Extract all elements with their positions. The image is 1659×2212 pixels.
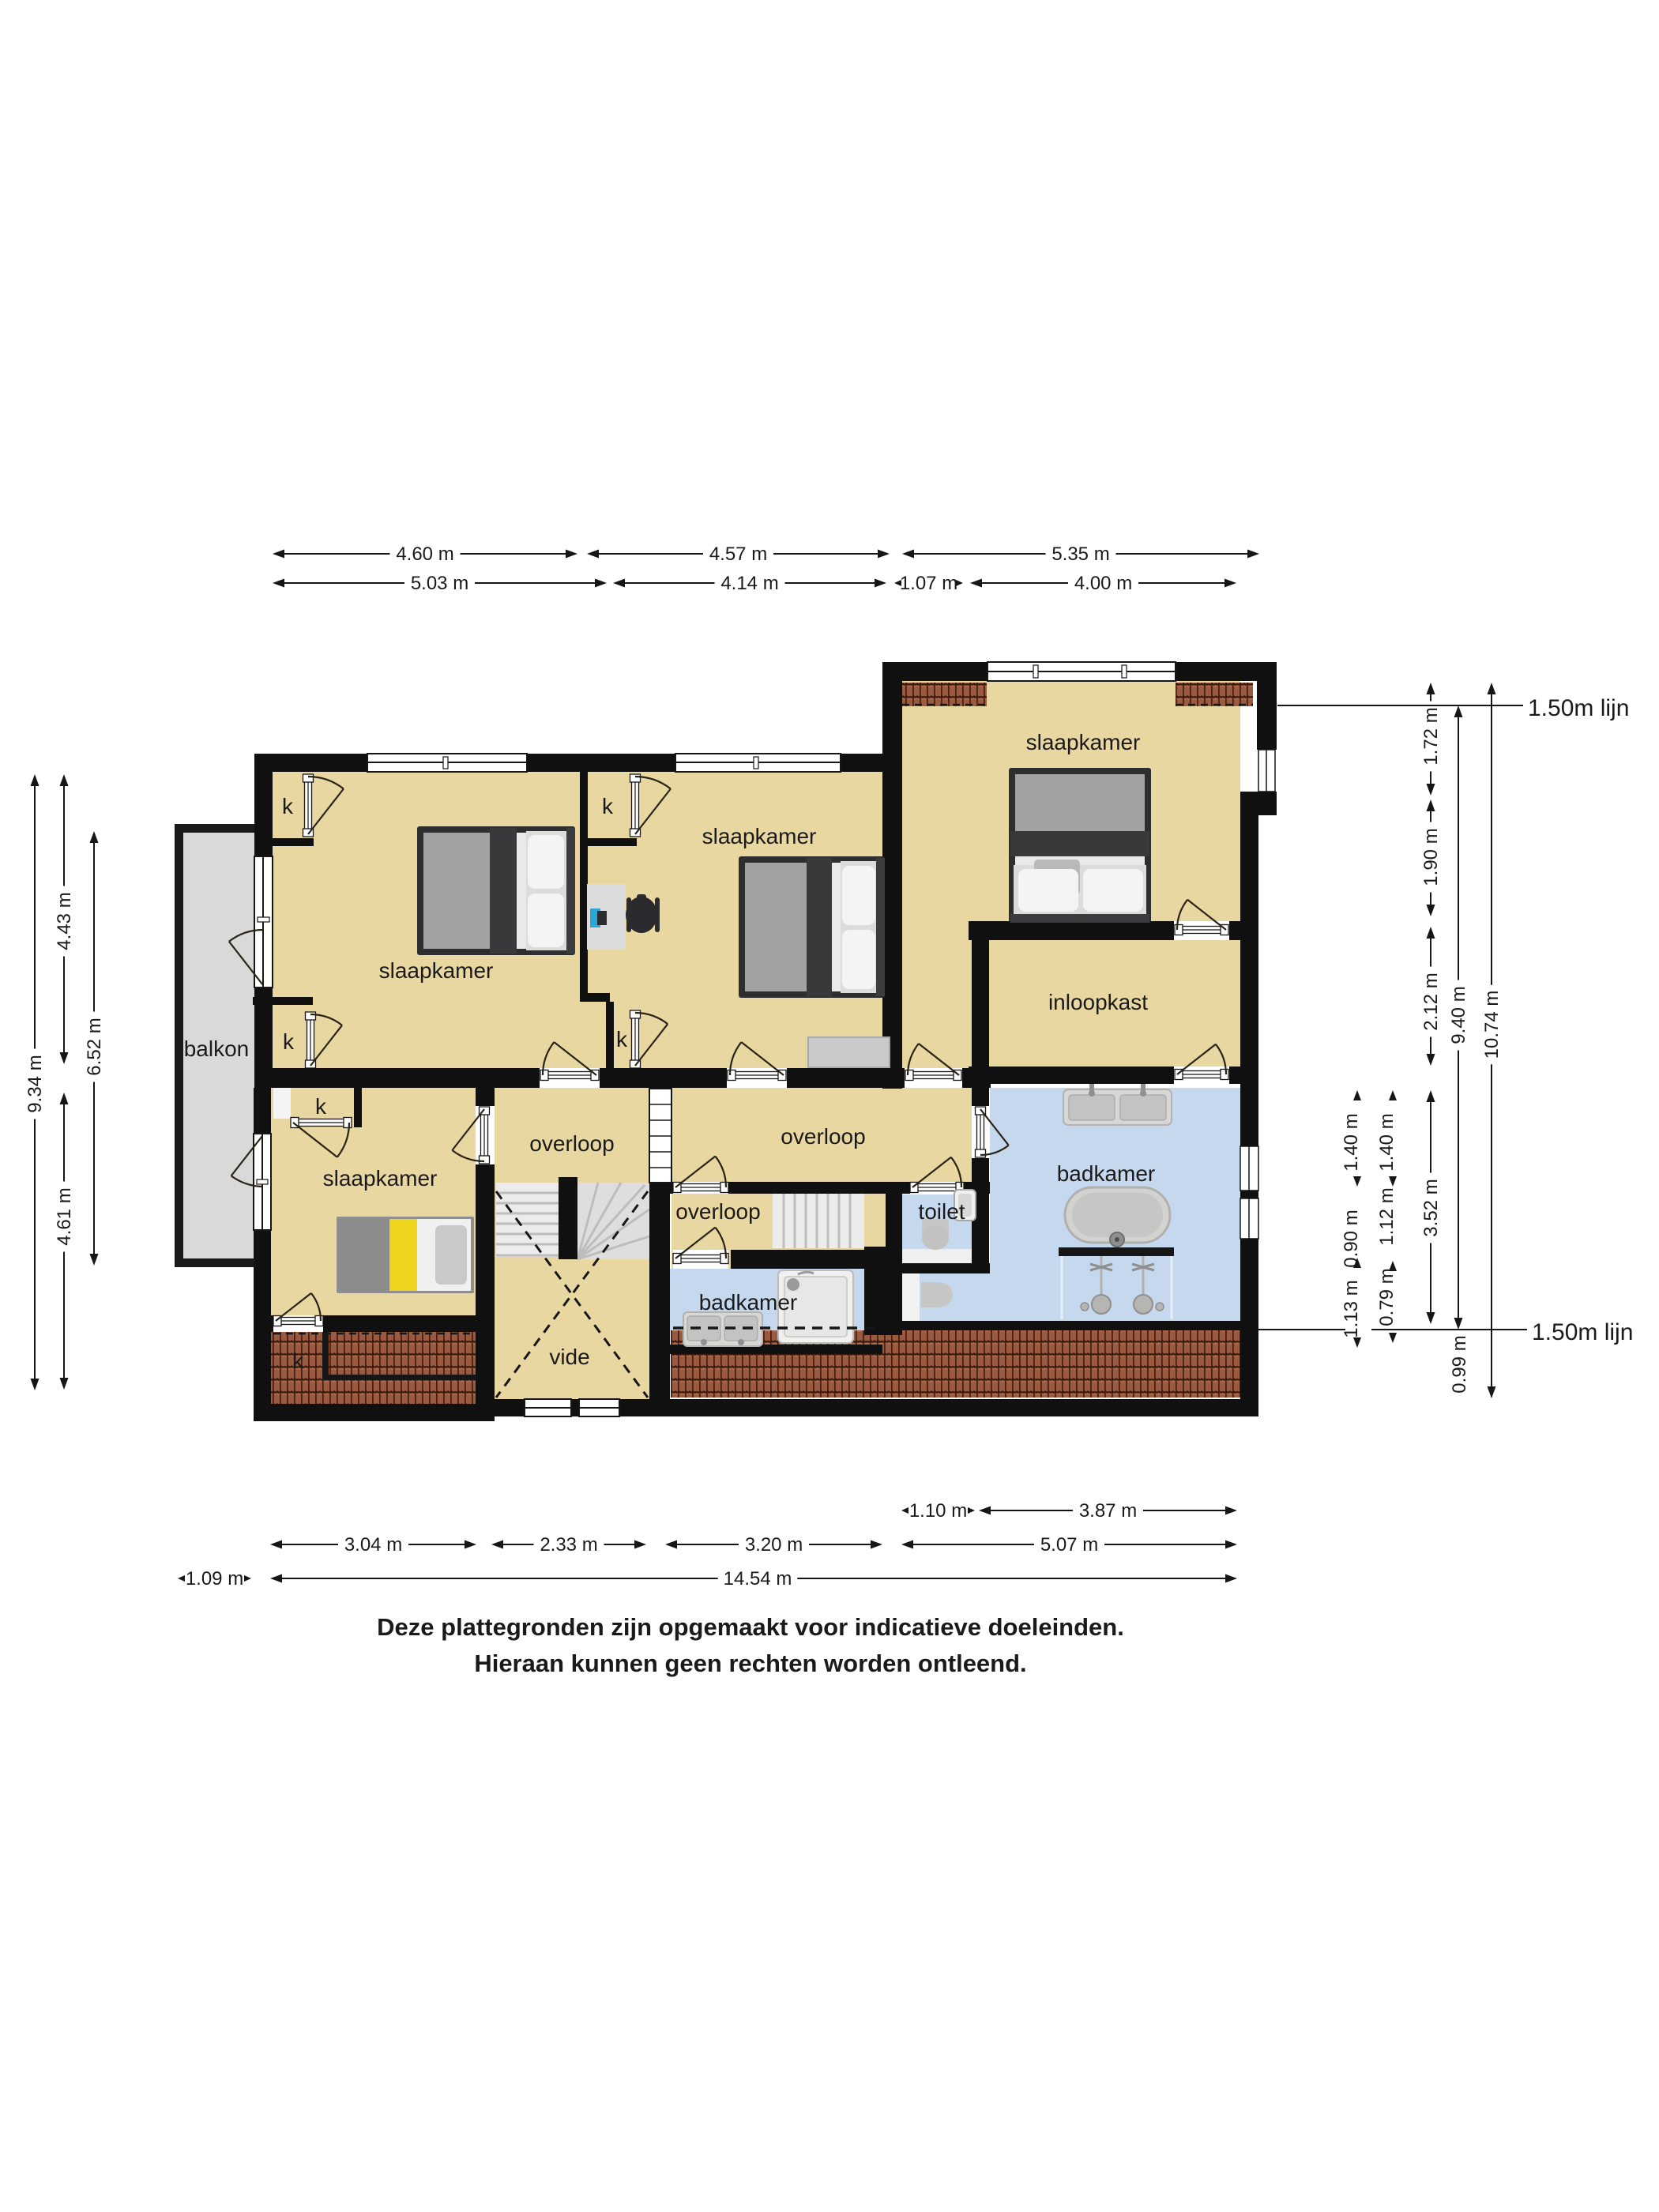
svg-text:9.40 m: 9.40 m <box>1448 986 1469 1044</box>
svg-text:slaapkamer: slaapkamer <box>702 824 817 848</box>
svg-text:overloop: overloop <box>781 1124 865 1149</box>
svg-text:4.60 m: 4.60 m <box>396 544 453 565</box>
svg-text:badkamer: badkamer <box>699 1290 798 1315</box>
svg-text:3.52 m: 3.52 m <box>1420 1179 1442 1236</box>
svg-text:k: k <box>282 794 294 818</box>
svg-text:4.61 m: 4.61 m <box>54 1187 75 1245</box>
svg-text:toilet: toilet <box>918 1199 965 1224</box>
svg-text:2.12 m: 2.12 m <box>1420 972 1442 1030</box>
svg-text:1.90 m: 1.90 m <box>1420 828 1442 886</box>
svg-text:3.87 m: 3.87 m <box>1079 1500 1137 1522</box>
svg-text:2.33 m: 2.33 m <box>540 1534 597 1556</box>
svg-text:0.79 m: 0.79 m <box>1376 1268 1398 1326</box>
svg-text:6.52 m: 6.52 m <box>84 1018 105 1075</box>
svg-text:inloopkast: inloopkast <box>1048 990 1148 1014</box>
svg-text:0.90 m: 0.90 m <box>1341 1209 1362 1267</box>
svg-text:5.07 m: 5.07 m <box>1040 1534 1098 1556</box>
svg-text:1.40 m: 1.40 m <box>1341 1113 1362 1171</box>
svg-text:4.43 m: 4.43 m <box>54 892 75 950</box>
svg-text:k: k <box>616 1027 628 1051</box>
svg-text:0.99 m: 0.99 m <box>1449 1335 1470 1393</box>
svg-text:10.74 m: 10.74 m <box>1481 991 1503 1059</box>
svg-text:Hieraan kunnen geen rechten wo: Hieraan kunnen geen rechten worden ontle… <box>474 1650 1026 1677</box>
svg-text:1.07 m: 1.07 m <box>900 573 957 594</box>
svg-text:overloop: overloop <box>529 1131 614 1156</box>
svg-text:14.54 m: 14.54 m <box>724 1568 792 1589</box>
svg-text:k: k <box>315 1094 327 1119</box>
svg-text:slaapkamer: slaapkamer <box>1026 730 1141 754</box>
svg-text:1.72 m: 1.72 m <box>1420 707 1442 765</box>
svg-text:4.00 m: 4.00 m <box>1074 573 1132 594</box>
svg-text:3.20 m: 3.20 m <box>745 1534 803 1556</box>
svg-text:badkamer: badkamer <box>1057 1161 1156 1186</box>
svg-text:balkon: balkon <box>184 1036 250 1061</box>
svg-text:1.50m lijn: 1.50m lijn <box>1532 1319 1633 1345</box>
svg-text:1.12 m: 1.12 m <box>1376 1187 1398 1245</box>
svg-text:5.35 m: 5.35 m <box>1051 544 1109 565</box>
svg-text:overloop: overloop <box>675 1199 760 1224</box>
svg-text:4.57 m: 4.57 m <box>709 544 767 565</box>
svg-text:Deze plattegronden zijn opgema: Deze plattegronden zijn opgemaakt voor i… <box>377 1613 1124 1641</box>
svg-text:k: k <box>292 1349 304 1373</box>
svg-text:slaapkamer: slaapkamer <box>323 1166 438 1191</box>
svg-text:1.09 m: 1.09 m <box>186 1568 243 1589</box>
svg-text:1.40 m: 1.40 m <box>1376 1113 1398 1171</box>
svg-text:k: k <box>283 1029 295 1054</box>
svg-text:slaapkamer: slaapkamer <box>379 958 494 983</box>
svg-text:1.50m lijn: 1.50m lijn <box>1528 695 1629 721</box>
svg-text:vide: vide <box>549 1345 589 1369</box>
svg-text:9.34 m: 9.34 m <box>24 1055 46 1112</box>
svg-text:1.10 m: 1.10 m <box>909 1500 967 1522</box>
svg-text:4.14 m: 4.14 m <box>720 573 778 594</box>
svg-text:5.03 m: 5.03 m <box>411 573 468 594</box>
svg-text:k: k <box>602 794 614 818</box>
svg-text:3.04 m: 3.04 m <box>344 1534 402 1556</box>
